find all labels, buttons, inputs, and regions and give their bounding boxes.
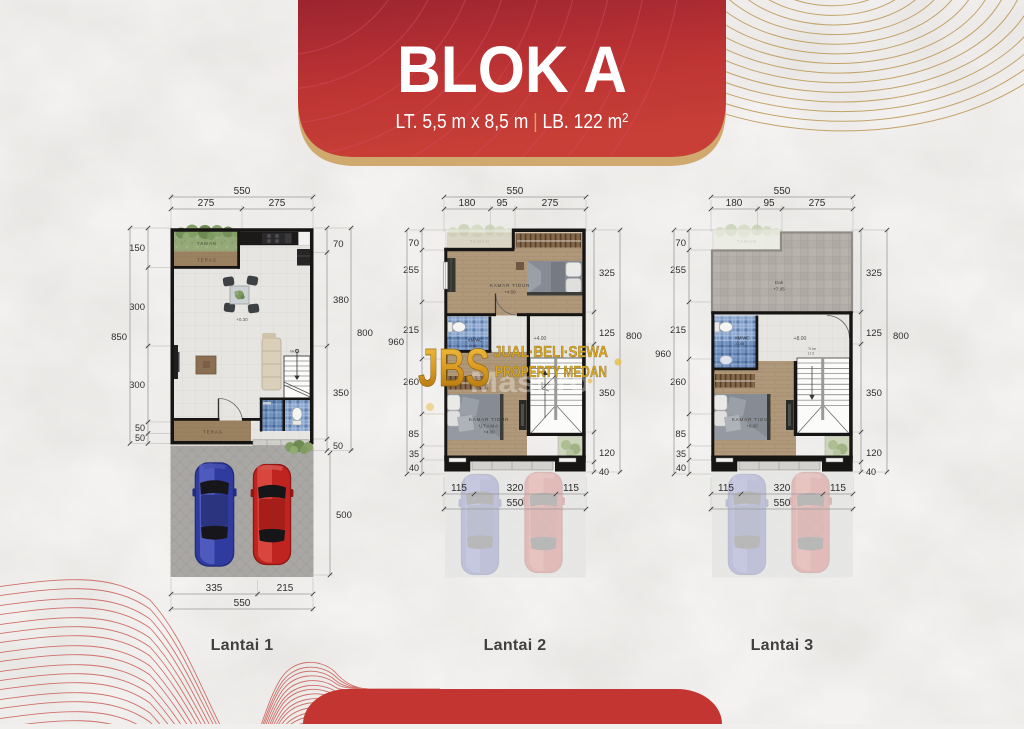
svg-text:85: 85	[408, 429, 419, 440]
svg-text:70: 70	[675, 238, 686, 249]
svg-text:550: 550	[774, 498, 791, 509]
svg-text:70: 70	[333, 239, 344, 250]
svg-text:275: 275	[809, 198, 826, 209]
svg-text:350: 350	[333, 388, 349, 399]
svg-text:350: 350	[599, 388, 615, 399]
svg-text:125: 125	[599, 328, 615, 339]
svg-text:115: 115	[718, 483, 734, 494]
svg-text:215: 215	[403, 325, 419, 336]
svg-text:960: 960	[655, 349, 671, 360]
svg-text:TERAS: TERAS	[197, 258, 217, 263]
svg-text:550: 550	[234, 598, 251, 609]
svg-text:115: 115	[830, 483, 846, 494]
svg-text:380: 380	[333, 295, 349, 306]
svg-text:85: 85	[675, 429, 686, 440]
svg-text:300: 300	[129, 380, 145, 391]
svg-text:275: 275	[542, 198, 559, 209]
svg-text:180: 180	[726, 198, 743, 209]
svg-text:+7.95: +7.95	[773, 287, 785, 292]
svg-text:TAMAN: TAMAN	[197, 241, 217, 246]
svg-text:35: 35	[409, 449, 419, 459]
svg-text:95: 95	[763, 198, 775, 209]
svg-text:KM/WC: KM/WC	[735, 336, 749, 341]
svg-text:550: 550	[507, 498, 524, 509]
svg-text:LT. 5,5 m x 8,5 m | LB. 122 m2: LT. 5,5 m x 8,5 m | LB. 122 m2	[396, 110, 629, 133]
svg-text:PROPERTY MEDAN: PROPERTY MEDAN	[495, 364, 607, 381]
svg-text:335: 335	[206, 583, 223, 594]
svg-text:Lantai 2: Lantai 2	[484, 637, 547, 654]
svg-text:+8.00: +8.00	[794, 336, 807, 342]
svg-text:Lt 3: Lt 3	[808, 352, 814, 356]
svg-text:40: 40	[409, 463, 419, 473]
svg-text:JBS: JBS	[418, 338, 490, 398]
svg-text:95: 95	[496, 198, 508, 209]
svg-text:275: 275	[198, 198, 215, 209]
svg-text:JUAL·BELI·SEWA: JUAL·BELI·SEWA	[494, 344, 608, 361]
svg-text:320: 320	[507, 483, 524, 494]
svg-text:325: 325	[866, 268, 882, 279]
svg-text:350: 350	[866, 388, 882, 399]
svg-text:300: 300	[129, 302, 145, 313]
svg-text:40: 40	[599, 467, 609, 477]
svg-text:+0.30: +0.30	[236, 317, 248, 322]
svg-text:Dak: Dak	[775, 280, 784, 286]
svg-text:260: 260	[403, 377, 419, 388]
svg-text:800: 800	[626, 331, 642, 342]
svg-text:40: 40	[676, 463, 686, 473]
svg-text:BLOK A: BLOK A	[397, 32, 627, 106]
svg-text:120: 120	[599, 448, 615, 459]
svg-text:Lantai 1: Lantai 1	[211, 637, 274, 654]
svg-text:260: 260	[670, 377, 686, 388]
svg-text:960: 960	[388, 337, 404, 348]
svg-text:TERAS: TERAS	[203, 430, 223, 435]
svg-text:+4.00: +4.00	[483, 430, 495, 435]
svg-text:800: 800	[357, 328, 373, 339]
svg-text:Nk 16: Nk 16	[290, 350, 299, 354]
svg-text:125: 125	[866, 328, 882, 339]
svg-text:120: 120	[866, 448, 882, 459]
svg-text:+4.00: +4.00	[534, 336, 547, 342]
svg-text:550: 550	[507, 186, 524, 197]
svg-text:150: 150	[129, 243, 145, 254]
svg-text:275: 275	[269, 198, 286, 209]
svg-text:320: 320	[774, 483, 791, 494]
svg-text:215: 215	[277, 583, 294, 594]
svg-text:255: 255	[403, 265, 419, 276]
svg-text:50: 50	[135, 423, 145, 433]
svg-text:325: 325	[599, 268, 615, 279]
svg-text:70: 70	[408, 238, 419, 249]
svg-text:Lantai 3: Lantai 3	[751, 637, 814, 654]
svg-text:+8.00: +8.00	[746, 424, 758, 429]
svg-text:+4.50: +4.50	[504, 290, 516, 295]
svg-text:550: 550	[234, 186, 251, 197]
svg-text:255: 255	[670, 265, 686, 276]
svg-text:215: 215	[670, 325, 686, 336]
svg-text:550: 550	[774, 186, 791, 197]
svg-text:850: 850	[111, 332, 127, 343]
svg-text:800: 800	[893, 331, 909, 342]
svg-text:115: 115	[563, 483, 579, 494]
svg-text:35: 35	[676, 449, 686, 459]
svg-text:Tr ke: Tr ke	[808, 347, 816, 351]
svg-text:50: 50	[135, 433, 145, 443]
svg-text:180: 180	[459, 198, 476, 209]
svg-text:UTAMA: UTAMA	[479, 424, 499, 429]
svg-text:KAMAR TIDUR: KAMAR TIDUR	[469, 417, 509, 422]
svg-text:-0.45: -0.45	[735, 341, 745, 346]
svg-text:115: 115	[451, 483, 467, 494]
svg-text:500: 500	[336, 510, 352, 521]
svg-text:KAMAR TIDUR: KAMAR TIDUR	[732, 417, 772, 422]
svg-text:KAMAR TIDUR: KAMAR TIDUR	[490, 283, 530, 288]
svg-text:40: 40	[866, 467, 876, 477]
svg-text:50: 50	[333, 441, 343, 451]
